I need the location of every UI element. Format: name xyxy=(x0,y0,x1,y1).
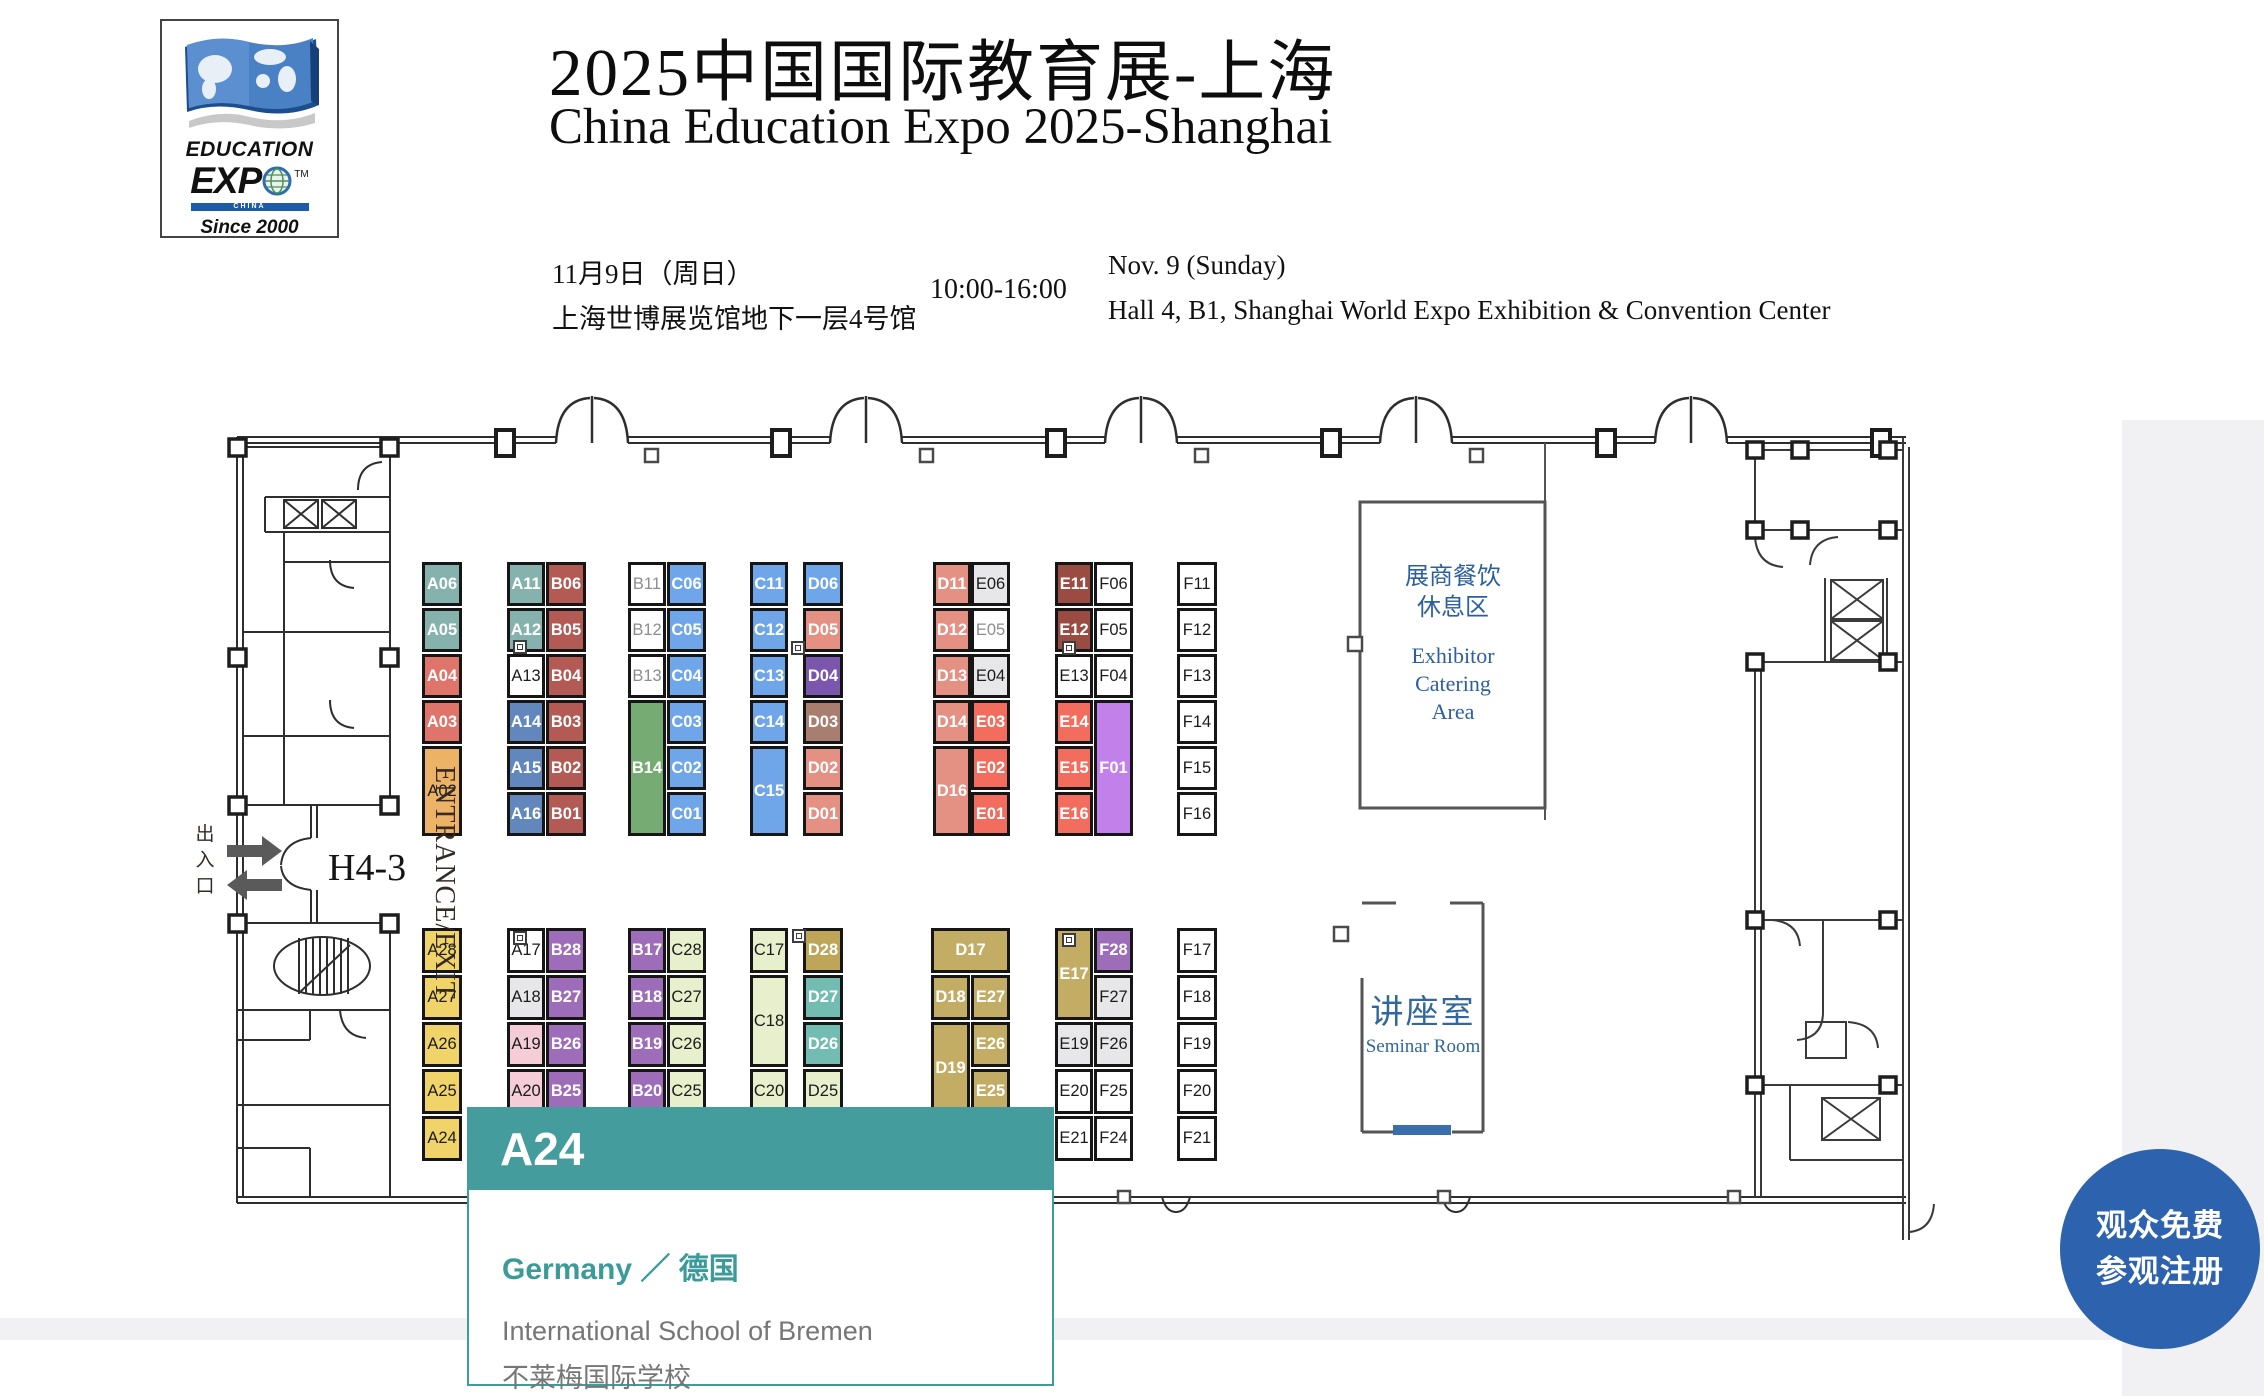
booth-d12[interactable]: D12 xyxy=(933,608,971,652)
booth-e27[interactable]: E27 xyxy=(971,975,1010,1020)
booth-f24[interactable]: F24 xyxy=(1094,1116,1133,1161)
seminar-label-zh: 讲座室 xyxy=(1363,985,1483,1033)
booth-f04[interactable]: F04 xyxy=(1094,654,1133,698)
booth-c17[interactable]: C17 xyxy=(750,928,788,973)
booth-d17[interactable]: D17 xyxy=(931,928,1010,973)
booth-e21[interactable]: E21 xyxy=(1055,1116,1093,1161)
booth-a15[interactable]: A15 xyxy=(507,746,545,790)
booth-e11[interactable]: E11 xyxy=(1055,562,1093,606)
booth-f21[interactable]: F21 xyxy=(1177,1116,1217,1161)
booth-a19[interactable]: A19 xyxy=(507,1022,545,1067)
booth-d27[interactable]: D27 xyxy=(803,975,843,1020)
popup-body: Germany ／ 德国 International School of Bre… xyxy=(467,1190,1054,1386)
booth-f25[interactable]: F25 xyxy=(1094,1069,1133,1114)
booth-f01[interactable]: F01 xyxy=(1094,700,1133,836)
register-button-line2: 参观注册 xyxy=(2096,1249,2224,1296)
door-icon xyxy=(1062,933,1076,947)
booth-f13[interactable]: F13 xyxy=(1177,654,1217,698)
booth-d16[interactable]: D16 xyxy=(933,746,971,836)
register-button-line1: 观众免费 xyxy=(2096,1203,2224,1250)
booth-b27[interactable]: B27 xyxy=(546,975,586,1020)
entrance-exit-label: ENTRANCE/EXIT xyxy=(170,766,460,826)
booth-b13[interactable]: B13 xyxy=(628,654,666,698)
door-icon xyxy=(791,641,805,655)
booth-b02[interactable]: B02 xyxy=(546,746,586,790)
booth-e26[interactable]: E26 xyxy=(971,1022,1010,1067)
booth-e03[interactable]: E03 xyxy=(971,700,1010,744)
booth-b06[interactable]: B06 xyxy=(546,562,586,606)
booth-a25[interactable]: A25 xyxy=(422,1069,462,1114)
booth-e01[interactable]: E01 xyxy=(971,792,1010,836)
booth-d14[interactable]: D14 xyxy=(933,700,971,744)
booth-a05[interactable]: A05 xyxy=(422,608,462,652)
booth-d01[interactable]: D01 xyxy=(803,792,843,836)
booth-c12[interactable]: C12 xyxy=(750,608,788,652)
booth-f12[interactable]: F12 xyxy=(1177,608,1217,652)
seminar-door-marker xyxy=(1393,1125,1451,1135)
booth-f06[interactable]: F06 xyxy=(1094,562,1133,606)
booth-d05[interactable]: D05 xyxy=(803,608,843,652)
booth-f14[interactable]: F14 xyxy=(1177,700,1217,744)
entrance-exit-label-zh: 出入口 xyxy=(194,822,216,900)
booth-f18[interactable]: F18 xyxy=(1177,975,1217,1020)
catering-label-en: Exhibitor Catering Area xyxy=(1362,642,1544,726)
booth-b11[interactable]: B11 xyxy=(628,562,666,606)
booth-a24[interactable]: A24 xyxy=(422,1116,462,1161)
booth-b04[interactable]: B04 xyxy=(546,654,586,698)
booth-b18[interactable]: B18 xyxy=(628,975,666,1020)
booth-c01[interactable]: C01 xyxy=(667,792,706,836)
catering-area-label: 展商餐饮 休息区 Exhibitor Catering Area xyxy=(1362,562,1544,726)
booth-a14[interactable]: A14 xyxy=(507,700,545,744)
seminar-room-label: 讲座室 Seminar Room xyxy=(1363,985,1483,1058)
popup-exhibitor-name-en: International School of Bremen xyxy=(502,1316,1052,1347)
booth-c14[interactable]: C14 xyxy=(750,700,788,744)
booth-b01[interactable]: B01 xyxy=(546,792,586,836)
booth-d26[interactable]: D26 xyxy=(803,1022,843,1067)
booth-b05[interactable]: B05 xyxy=(546,608,586,652)
booth-f05[interactable]: F05 xyxy=(1094,608,1133,652)
booth-info-popup: A24 Germany ／ 德国 International School of… xyxy=(467,1107,1054,1386)
booth-f11[interactable]: F11 xyxy=(1177,562,1217,606)
booth-c04[interactable]: C04 xyxy=(667,654,706,698)
booth-a04[interactable]: A04 xyxy=(422,654,462,698)
booth-b19[interactable]: B19 xyxy=(628,1022,666,1067)
booth-f28[interactable]: F28 xyxy=(1094,928,1133,973)
popup-exhibitor-name-zh: 不莱梅国际学校 xyxy=(502,1356,1052,1395)
booth-f27[interactable]: F27 xyxy=(1094,975,1133,1020)
booth-e20[interactable]: E20 xyxy=(1055,1069,1093,1114)
booth-e16[interactable]: E16 xyxy=(1055,792,1093,836)
booth-c03[interactable]: C03 xyxy=(667,700,706,744)
door-icon xyxy=(513,640,527,654)
door-icon xyxy=(1062,641,1076,655)
booth-e15[interactable]: E15 xyxy=(1055,746,1093,790)
booth-d19[interactable]: D19 xyxy=(931,1022,970,1114)
booth-a16[interactable]: A16 xyxy=(507,792,545,836)
booth-c18[interactable]: C18 xyxy=(750,975,788,1067)
booth-d03[interactable]: D03 xyxy=(803,700,843,744)
booth-f26[interactable]: F26 xyxy=(1094,1022,1133,1067)
booth-c06[interactable]: C06 xyxy=(667,562,706,606)
floorplan-drawing xyxy=(0,0,2264,1396)
popup-booth-id: A24 xyxy=(467,1107,1054,1190)
booth-c13[interactable]: C13 xyxy=(750,654,788,698)
popup-country: Germany ／ 德国 xyxy=(502,1244,1052,1288)
booth-e13[interactable]: E13 xyxy=(1055,654,1093,698)
visitor-register-button[interactable]: 观众免费 参观注册 xyxy=(2060,1149,2260,1349)
booth-f16[interactable]: F16 xyxy=(1177,792,1217,836)
booth-a18[interactable]: A18 xyxy=(507,975,545,1020)
booth-a06[interactable]: A06 xyxy=(422,562,462,606)
booth-e19[interactable]: E19 xyxy=(1055,1022,1093,1067)
door-icon xyxy=(513,931,527,945)
booth-d28[interactable]: D28 xyxy=(803,928,843,973)
catering-label-zh: 展商餐饮 休息区 xyxy=(1362,562,1544,624)
booth-c11[interactable]: C11 xyxy=(750,562,788,606)
page-bottom-margin xyxy=(0,1318,2122,1340)
booth-c28[interactable]: C28 xyxy=(667,928,706,973)
booth-c05[interactable]: C05 xyxy=(667,608,706,652)
booth-e14[interactable]: E14 xyxy=(1055,700,1093,744)
booth-c15[interactable]: C15 xyxy=(750,746,788,836)
booth-a03[interactable]: A03 xyxy=(422,700,462,744)
booth-e04[interactable]: E04 xyxy=(971,654,1010,698)
booth-b26[interactable]: B26 xyxy=(546,1022,586,1067)
booth-f19[interactable]: F19 xyxy=(1177,1022,1217,1067)
booth-e02[interactable]: E02 xyxy=(971,746,1010,790)
booth-c02[interactable]: C02 xyxy=(667,746,706,790)
booth-d02[interactable]: D02 xyxy=(803,746,843,790)
booth-b12[interactable]: B12 xyxy=(628,608,666,652)
entrance-arrows-icon xyxy=(227,836,282,900)
gate-label: H4-3 xyxy=(328,846,406,890)
booth-f15[interactable]: F15 xyxy=(1177,746,1217,790)
booth-d11[interactable]: D11 xyxy=(933,562,971,606)
booth-a26[interactable]: A26 xyxy=(422,1022,462,1067)
booth-e05[interactable]: E05 xyxy=(971,608,1010,652)
booth-b14[interactable]: B14 xyxy=(628,700,666,836)
booth-d06[interactable]: D06 xyxy=(803,562,843,606)
booth-c27[interactable]: C27 xyxy=(667,975,706,1020)
door-icon xyxy=(792,929,806,943)
booth-e06[interactable]: E06 xyxy=(971,562,1010,606)
booth-a13[interactable]: A13 xyxy=(507,654,545,698)
booth-f17[interactable]: F17 xyxy=(1177,928,1217,973)
booth-c26[interactable]: C26 xyxy=(667,1022,706,1067)
booth-b03[interactable]: B03 xyxy=(546,700,586,744)
booth-d04[interactable]: D04 xyxy=(803,654,843,698)
seminar-label-en: Seminar Room xyxy=(1363,1036,1483,1058)
booth-a11[interactable]: A11 xyxy=(507,562,545,606)
booth-d13[interactable]: D13 xyxy=(933,654,971,698)
booth-d18[interactable]: D18 xyxy=(931,975,970,1020)
booth-b28[interactable]: B28 xyxy=(546,928,586,973)
booth-b17[interactable]: B17 xyxy=(628,928,666,973)
booth-f20[interactable]: F20 xyxy=(1177,1069,1217,1114)
